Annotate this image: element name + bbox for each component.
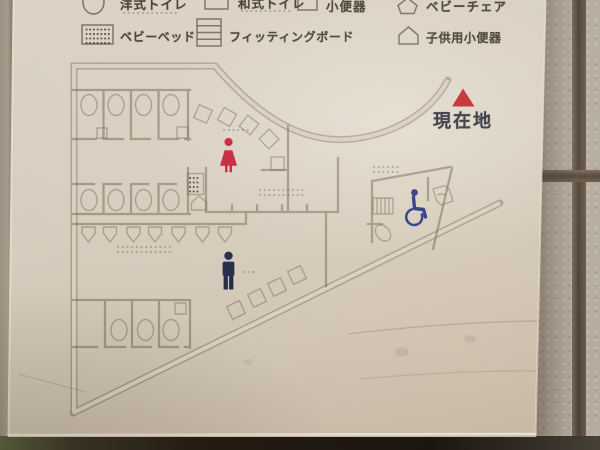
current-location-triangle-icon — [452, 89, 475, 107]
legend-label-child-urinal: 子供用小便器 — [426, 29, 502, 46]
legend-icon-squat-toilet — [205, 0, 228, 9]
map-fixtures — [81, 95, 306, 341]
floor-plan-map — [0, 0, 600, 450]
legend-label-western-toilet: 洋式トイレ — [120, 0, 188, 13]
legend-icon-baby-bed — [82, 25, 113, 44]
legend-label-fitting-board: フィッティングボード — [229, 28, 354, 45]
legend-label-baby-chair: ベビーチェア — [426, 0, 507, 15]
legend-icon-baby-chair — [398, 0, 417, 14]
baby-bed-area-icon — [188, 174, 204, 195]
legend-label-baby-bed: ベビーベッド — [120, 28, 196, 45]
child-urinal-shape-icon — [192, 196, 207, 210]
woman-pictogram-icon — [220, 138, 237, 172]
man-pictogram-icon — [223, 252, 235, 290]
legend-label-squat-toilet: 和式トイレ — [238, 0, 306, 12]
legend-label-urinal: 小便器 — [326, 0, 367, 15]
legend-icon-western-toilet — [83, 0, 104, 14]
legend-icon-fitting-board — [197, 19, 221, 46]
legend-icon-child-urinal — [399, 27, 418, 44]
surface-scratches — [18, 321, 540, 392]
current-location-label: 現在地 — [433, 107, 493, 133]
wheelchair-pictogram-icon — [406, 189, 425, 225]
restroom-map-sign-photo: 洋式トイレ 和式トイレ 小便器 ベビーチェア ベビーベッド フィッティングボード… — [0, 0, 600, 450]
